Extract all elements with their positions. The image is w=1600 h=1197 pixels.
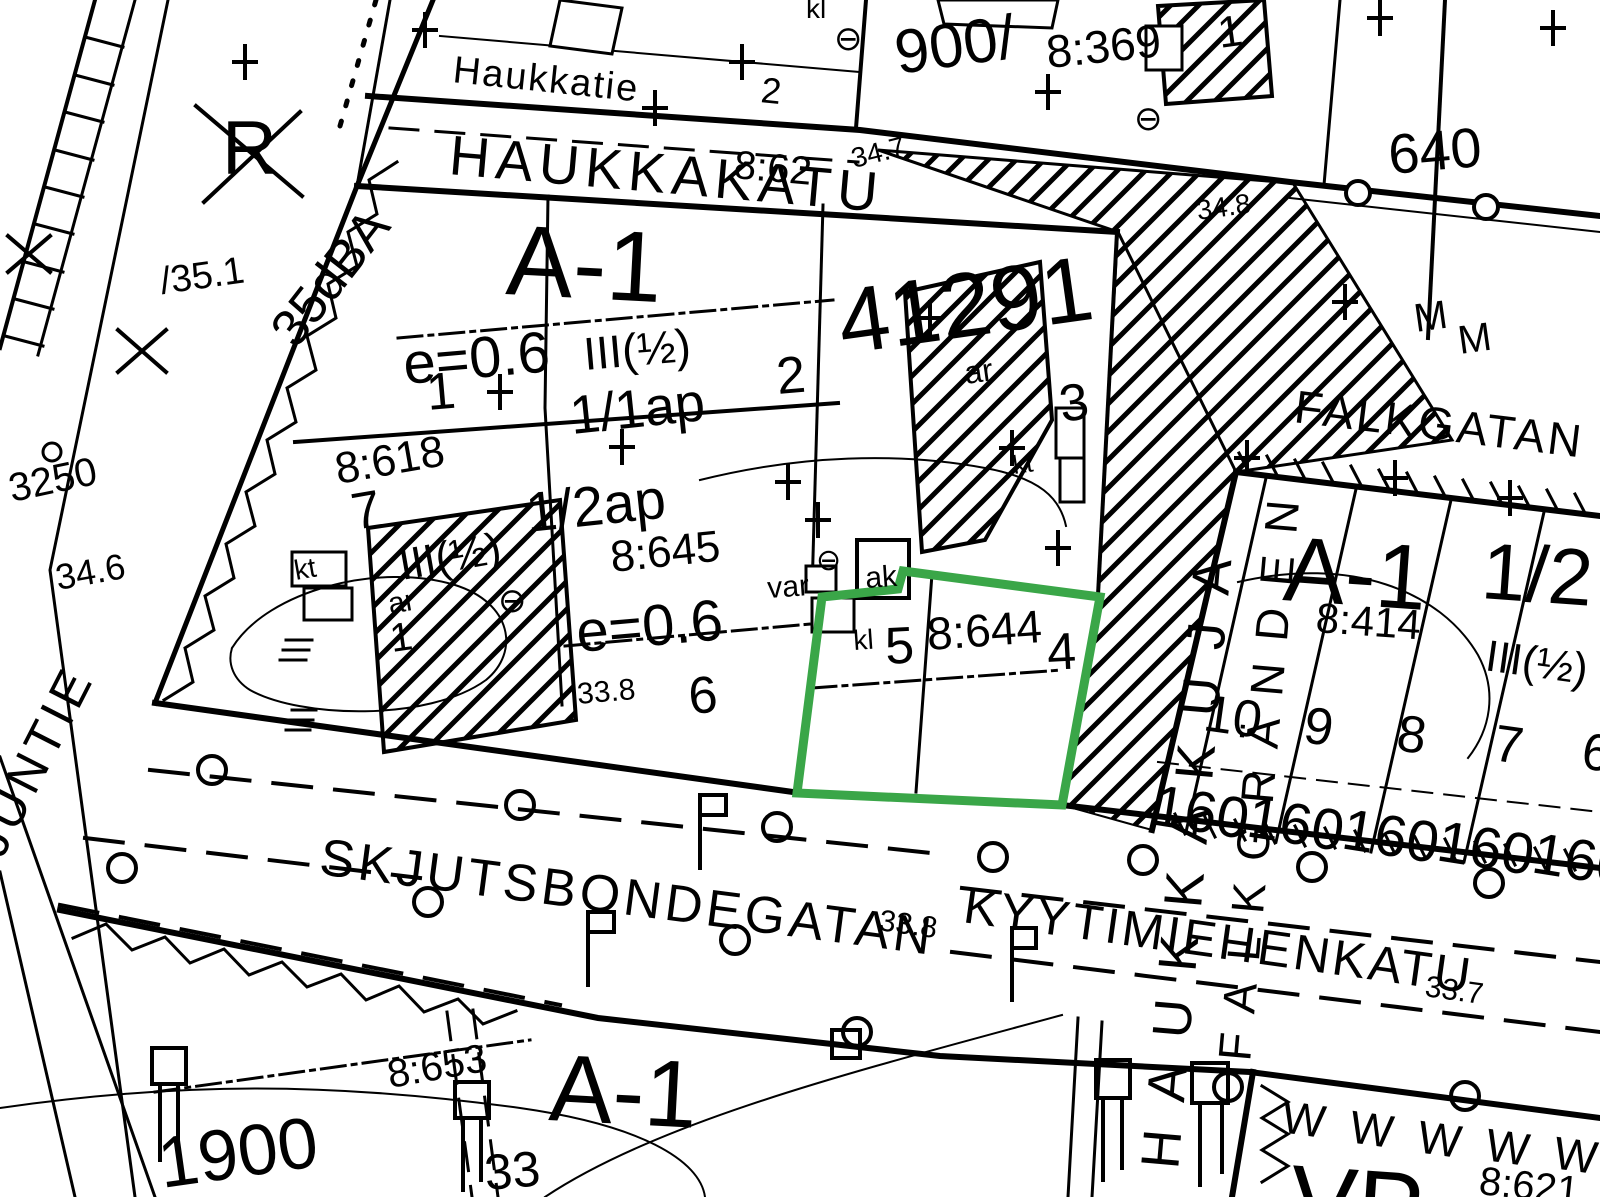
parcel-dashdot [812,670,1062,688]
map-label-areas-4: 160 [1338,797,1444,876]
map-label-annotations-2: ar [962,351,996,391]
map-label-lots-7: 10 [1200,684,1265,749]
map-label-zones-9: III(½) [581,319,692,380]
map-label-parcels-6: 8:414 [1314,594,1422,648]
map-label-parcels-0: 900/ [890,3,1020,88]
map-label-lots-14: 2 [759,69,783,112]
map-label-annotations-16: W [1347,1100,1398,1158]
map-label-annotations-7: kl [806,0,826,24]
map-label-areas-5: 160 [1433,809,1539,888]
map-label-lots-5: 5 [884,617,916,676]
map-label-annotations-17: W [1415,1110,1466,1168]
building-top-center [550,0,622,54]
map-label-annotations-11: ⊖ [498,582,527,620]
map-label-elevations-4: 33.8 [576,673,637,711]
map-label-elevations-2: 34.7 [848,131,908,174]
map-label-annotations-6: kl [852,624,874,656]
map-label-zones-11: III(½) [1483,631,1592,694]
map-label-elevations-0: /35.1 [157,250,247,303]
map-label-zones-8: e=0.6 [573,587,725,665]
map-label-areas-7: 3250 [5,449,101,511]
map-label-annotations-15: W [1279,1090,1330,1148]
map-label-zones-12: 1/1ap [567,372,708,446]
map-label-annotations-14: M [1455,315,1494,363]
map-label-annotations-8: R [222,106,277,191]
map-label-elevations-6: 33.7 [1423,970,1485,1011]
map-label-lots-4: 6 [686,666,720,726]
map-label-annotations-4: var [766,569,810,605]
map-label-annotations-13: M [1411,293,1450,341]
map-label-parcels-5: 8:644 [925,600,1043,660]
map-label-zones-0: A-1 [504,204,665,324]
map-label-zones-1: 41291 [832,237,1100,374]
map-label-lots-11: 6 [1578,722,1600,783]
map-label-parcels-7: 8:653 [384,1036,490,1097]
map-label-lots-0: 1 [424,362,458,422]
map-label-annotations-12: ⊖ [816,544,841,577]
map-label-streets-2: SKJUTSBONDEGATAN [316,828,938,966]
map-label-areas-8: 33 [482,1140,542,1197]
parcel-inner-boundary [916,574,932,792]
map-label-lots-3: 7 [347,480,386,542]
map-label-areas-0: 640 [1386,115,1485,186]
map-label-zones-7: e=0.6 [400,319,552,397]
map-label-lots-1: 2 [774,346,808,406]
map-label-zones-4: A-1 [547,1035,700,1149]
map-viewport[interactable]: HaukkatieHAUKKAKATUSKJUTSBONDEGATANKYYTI… [0,0,1600,1197]
map-label-annotations-19: W [1551,1126,1600,1184]
zigzag-south-block [73,924,516,1024]
map-label-annotations-1: ar [385,584,417,621]
map-label-annotations-9: ⊖ [834,20,863,58]
map-label-annotations-5: ak [864,560,899,595]
map-label-lots-9: 8 [1393,704,1430,765]
map-label-parcels-2: 8:62 [732,143,813,194]
map-label-areas-6: 160 [1528,821,1600,900]
map-label-parcels-4: 8:645 [608,522,723,582]
zoning-map-canvas[interactable]: HaukkatieHAUKKAKATUSKJUTSBONDEGATANKYYTI… [0,0,1600,1197]
map-label-elevations-1: 34.6 [52,545,128,598]
map-label-zones-3: 1/2 [1479,526,1596,623]
map-label-zones-6: 35dBA [260,198,402,357]
map-label-annotations-18: W [1483,1118,1534,1176]
map-label-streets-7: JUNTIE [0,657,105,865]
map-label-lots-6: 4 [1046,623,1078,682]
map-label-annotations-10: ⊖ [1134,100,1163,138]
